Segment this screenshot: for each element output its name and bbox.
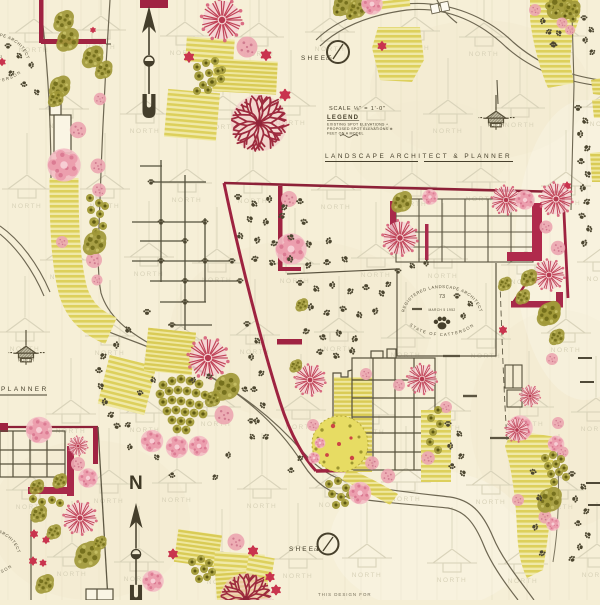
svg-text:NORTH: NORTH	[428, 273, 459, 280]
svg-text:NORTH: NORTH	[590, 121, 600, 128]
svg-text:NORTH: NORTH	[321, 204, 352, 211]
svg-text:NORTH: NORTH	[582, 572, 600, 579]
svg-text:NORTH: NORTH	[247, 503, 278, 510]
svg-text:73: 73	[439, 294, 445, 300]
svg-text:NORTH: NORTH	[172, 197, 203, 204]
svg-text:NORTH: NORTH	[581, 426, 600, 433]
svg-text:NORTH: NORTH	[469, 51, 500, 58]
svg-text:NORTH: NORTH	[433, 128, 464, 135]
svg-text:NORTH: NORTH	[57, 571, 88, 578]
svg-text:NORTH: NORTH	[437, 577, 468, 584]
svg-text:NORTH: NORTH	[18, 358, 34, 363]
svg-text:SCALE ⅛" = 1'-0": SCALE ⅛" = 1'-0"	[329, 106, 386, 112]
svg-text:EXISTING SPOT ELEVATIONS +: EXISTING SPOT ELEVATIONS +	[327, 123, 388, 127]
svg-text:LEGEND: LEGEND	[327, 115, 359, 121]
svg-text:NORTH: NORTH	[134, 271, 165, 278]
svg-text:NORTH: NORTH	[505, 122, 536, 129]
svg-text:THIS DESIGN FOR: THIS DESIGN FOR	[318, 592, 372, 597]
svg-text:NORTH: NORTH	[551, 347, 582, 354]
svg-text:NORTH: NORTH	[587, 276, 600, 283]
svg-text:PLANNER: PLANNER	[1, 386, 49, 393]
svg-text:NORTH: NORTH	[352, 572, 383, 579]
svg-text:LANDSCAPE ARCHITECT & PLANNER: LANDSCAPE ARCHITECT & PLANNER	[325, 153, 512, 160]
svg-text:NORTH: NORTH	[488, 123, 504, 128]
svg-text:NORTH: NORTH	[162, 497, 193, 504]
svg-text:NORTH: NORTH	[283, 573, 314, 580]
svg-text:NORTH: NORTH	[12, 203, 43, 210]
svg-text:NORTH: NORTH	[508, 578, 539, 585]
svg-text:NORTH: NORTH	[130, 128, 161, 135]
svg-text:N: N	[129, 473, 143, 494]
svg-text:NORTH: NORTH	[280, 278, 311, 285]
svg-text:MARCH 5 1952: MARCH 5 1952	[428, 308, 455, 312]
svg-text:FEET ON A MODEL: FEET ON A MODEL	[327, 132, 364, 136]
svg-text:NORTH: NORTH	[476, 499, 507, 506]
svg-text:NORTH: NORTH	[94, 498, 125, 505]
svg-text:MARCH 5 1952: MARCH 5 1952	[0, 55, 3, 59]
svg-text:NORTH: NORTH	[361, 272, 392, 279]
svg-text:PROPOSED SPOT ELEVATIONS ⊕: PROPOSED SPOT ELEVATIONS ⊕	[327, 127, 393, 131]
